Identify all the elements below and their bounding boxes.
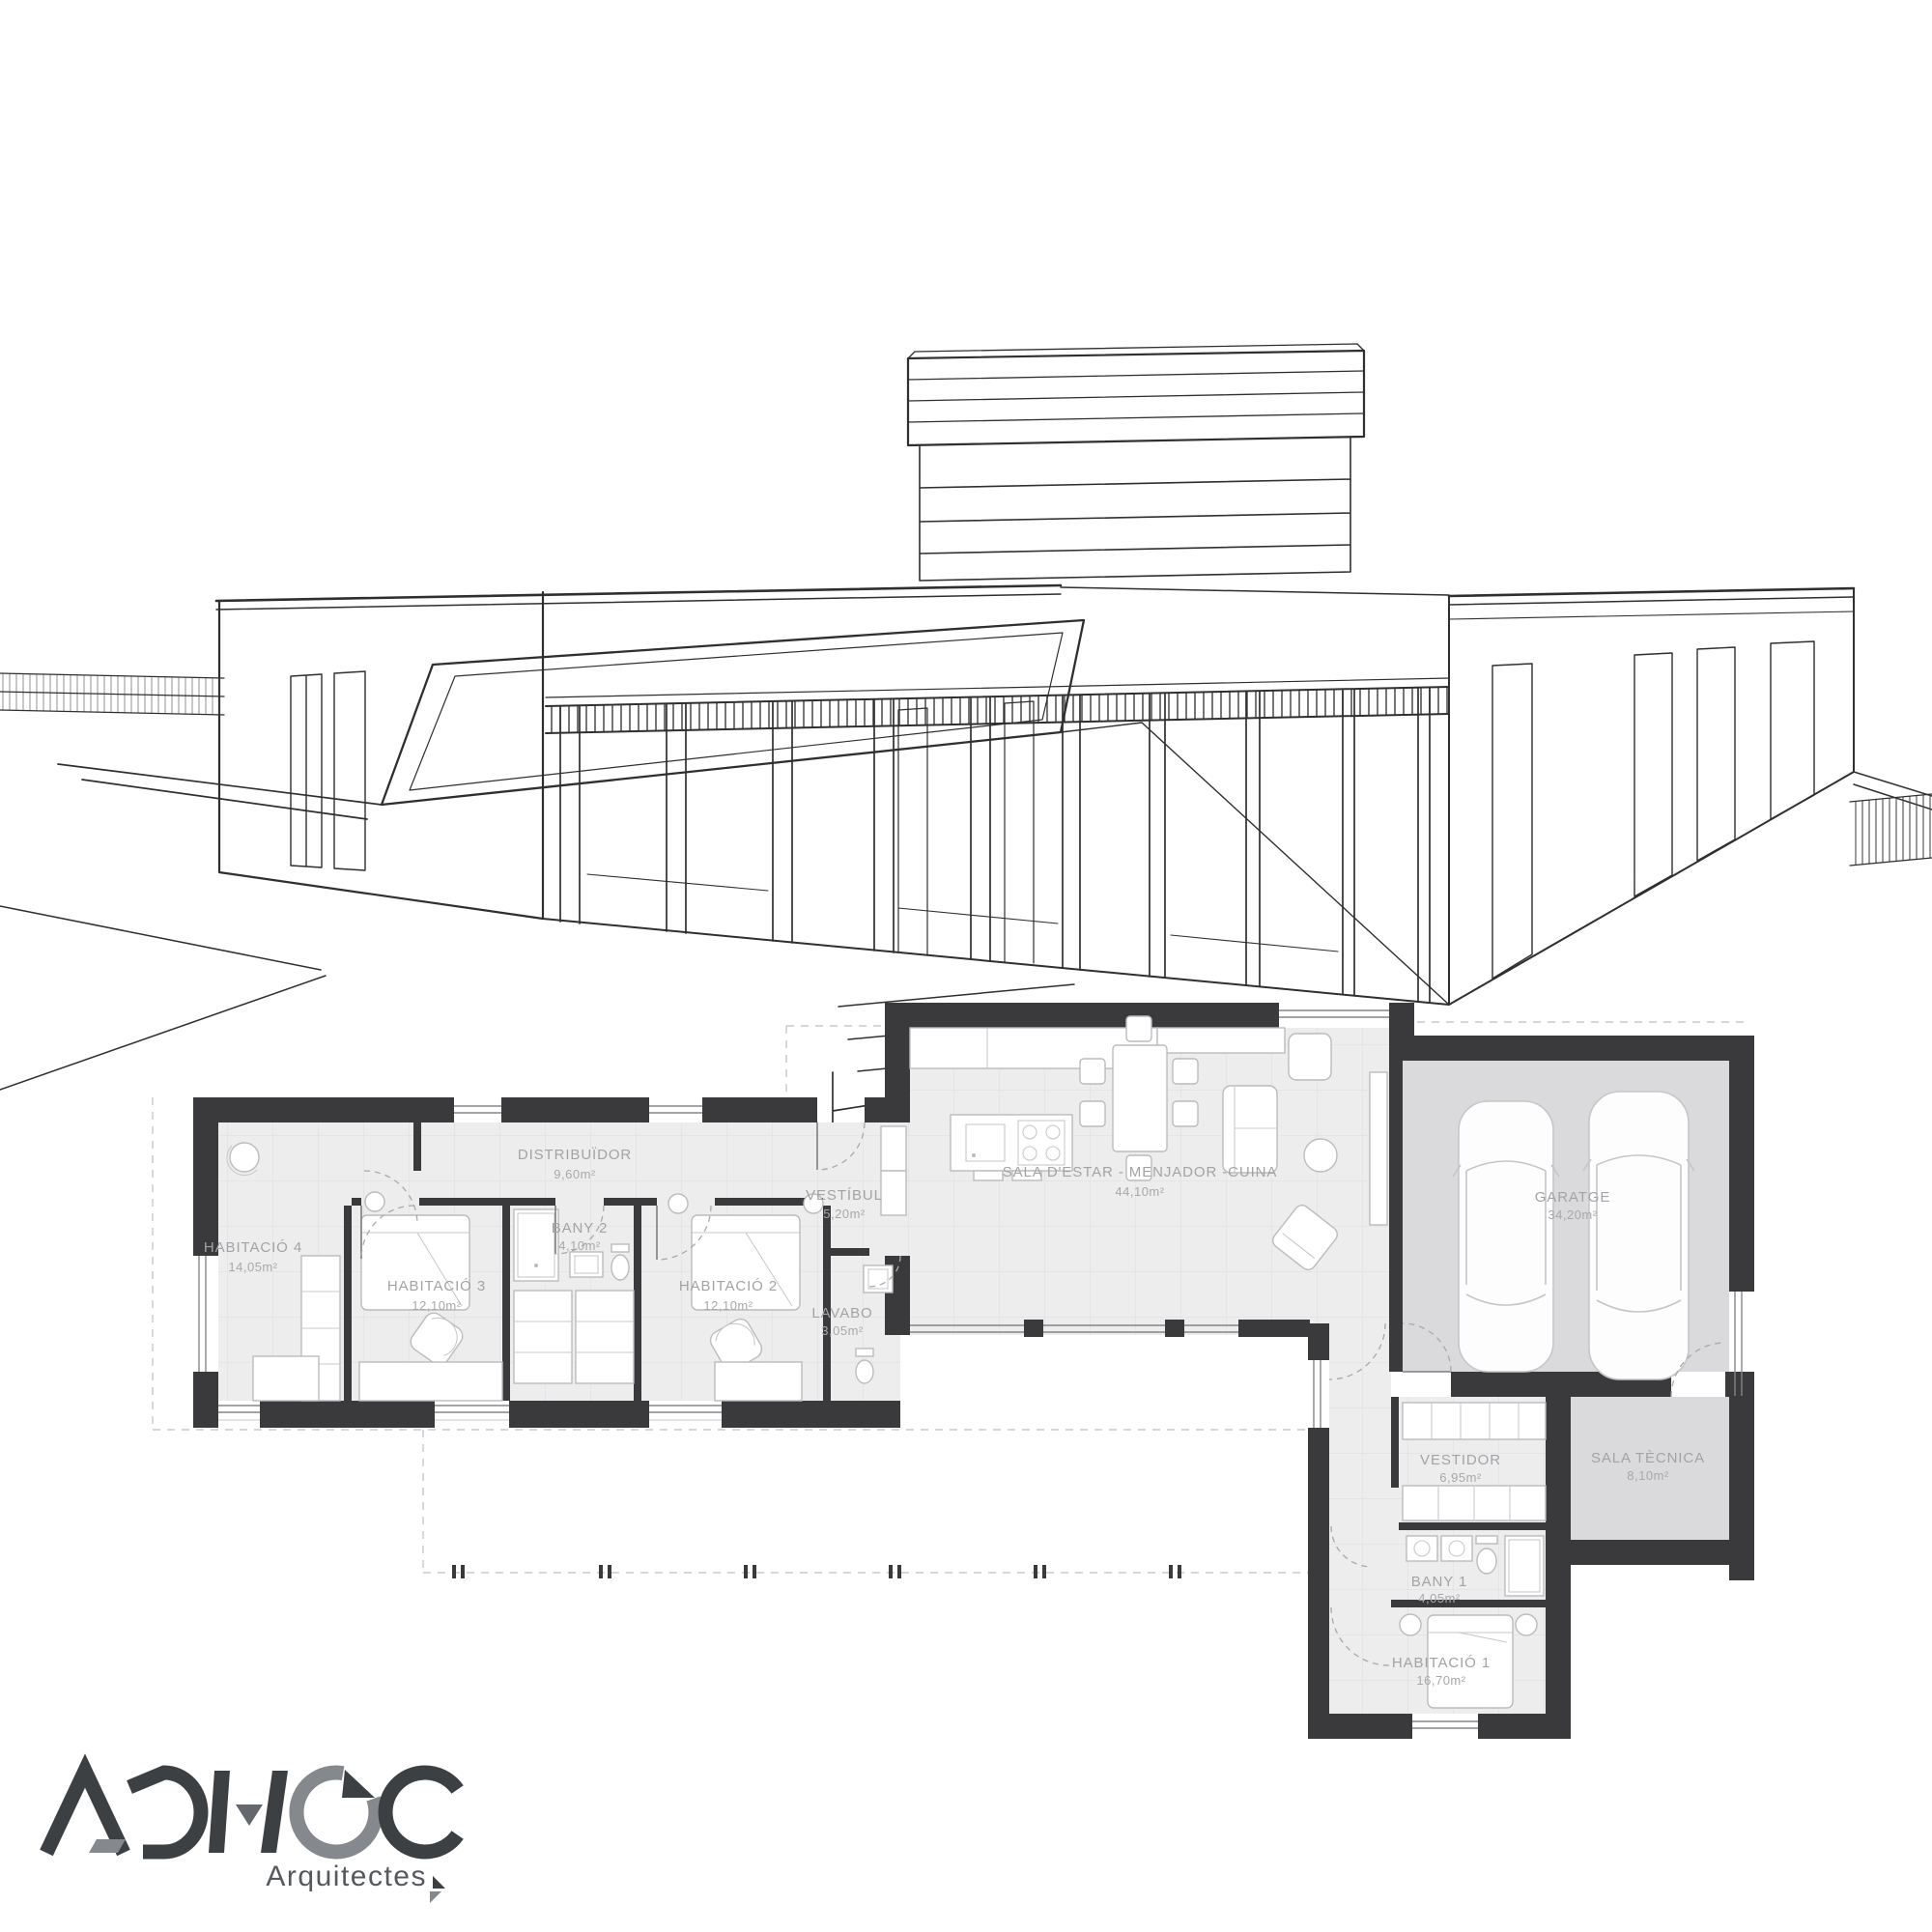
sketch-roof-line bbox=[216, 585, 1061, 601]
toilet-icon bbox=[1476, 1536, 1497, 1574]
sideboard-icon bbox=[1157, 1028, 1285, 1053]
room-area: 16,70m² bbox=[1416, 1673, 1465, 1688]
room-area: 14,05m² bbox=[228, 1260, 277, 1274]
room-area: 34,20m² bbox=[1548, 1207, 1597, 1222]
architectural-sheet: DISTRIBUÏDOR 9,60m² HABITACIÓ 4 14,05m² … bbox=[0, 0, 1932, 1932]
bench-icon bbox=[253, 1356, 319, 1401]
armchair-icon bbox=[1289, 1034, 1331, 1080]
sink-icon bbox=[570, 1252, 603, 1277]
room-label: VESTIDOR bbox=[1420, 1452, 1501, 1468]
room-label: SALA TÈCNICA bbox=[1591, 1450, 1705, 1466]
toilet-icon bbox=[856, 1349, 873, 1383]
room-label: HABITACIÓ 3 bbox=[387, 1278, 486, 1294]
tv-cabinet-icon bbox=[1370, 1072, 1387, 1225]
room-area: 9,60m² bbox=[554, 1167, 596, 1181]
toilet-icon bbox=[611, 1244, 629, 1280]
logo-arrow-icon bbox=[433, 1876, 445, 1889]
room-area: 12,10m² bbox=[703, 1298, 753, 1313]
room-area: 6,95m² bbox=[1439, 1470, 1482, 1485]
room-label: VESTÍBUL bbox=[806, 1187, 883, 1204]
window-glazing bbox=[454, 1106, 501, 1113]
sofa-icon bbox=[1223, 1086, 1277, 1173]
shower-icon bbox=[1505, 1536, 1544, 1596]
sketch-right-wall bbox=[1449, 588, 1854, 1005]
room-label: LAVABO bbox=[811, 1305, 872, 1321]
logo: AD HOC Arquitectes bbox=[46, 1760, 458, 1903]
porch-ticks bbox=[452, 1565, 1181, 1578]
dresser-icon bbox=[359, 1362, 502, 1401]
car-icon bbox=[1583, 1092, 1694, 1379]
room-label: SALA D'ESTAR - MENJADOR -CUINA bbox=[1003, 1164, 1278, 1180]
sink-icon bbox=[864, 1265, 893, 1293]
sketch-clerestory bbox=[908, 344, 1364, 581]
room-area: 4,10m² bbox=[558, 1238, 601, 1253]
floor-plan: DISTRIBUÏDOR 9,60m² HABITACIÓ 4 14,05m² … bbox=[153, 1003, 1754, 1739]
room-label: GARATGE bbox=[1535, 1189, 1611, 1206]
room-label: HABITACIÓ 4 bbox=[204, 1239, 302, 1256]
dresser-icon bbox=[715, 1362, 802, 1401]
room-area: 3,05m² bbox=[821, 1323, 864, 1338]
room-area: 5,20m² bbox=[823, 1207, 866, 1221]
sketch-ground-right bbox=[1850, 772, 1932, 866]
logo-arrow-icon bbox=[430, 1891, 441, 1903]
room-area: 8,10m² bbox=[1627, 1468, 1669, 1483]
room-label: HABITACIÓ 2 bbox=[679, 1278, 778, 1294]
sketch-ground-left bbox=[0, 673, 224, 715]
car-icon bbox=[1453, 1101, 1559, 1372]
room-label: BANY 2 bbox=[552, 1220, 609, 1236]
sketch-columns bbox=[560, 688, 1430, 1003]
coffee-table-icon bbox=[1304, 1139, 1337, 1172]
room-area: 44,10m² bbox=[1115, 1184, 1164, 1199]
logo-subtitle: Arquitectes bbox=[266, 1861, 427, 1892]
closet-icon bbox=[881, 1126, 906, 1215]
sketch-left-wall bbox=[219, 592, 543, 919]
room-label: DISTRIBUÏDOR bbox=[518, 1147, 632, 1163]
room-area: 4,05m² bbox=[1418, 1591, 1461, 1605]
room-label: HABITACIÓ 1 bbox=[1392, 1655, 1491, 1671]
room-area: 12,10m² bbox=[412, 1298, 461, 1313]
room-label: BANY 1 bbox=[1411, 1574, 1468, 1590]
